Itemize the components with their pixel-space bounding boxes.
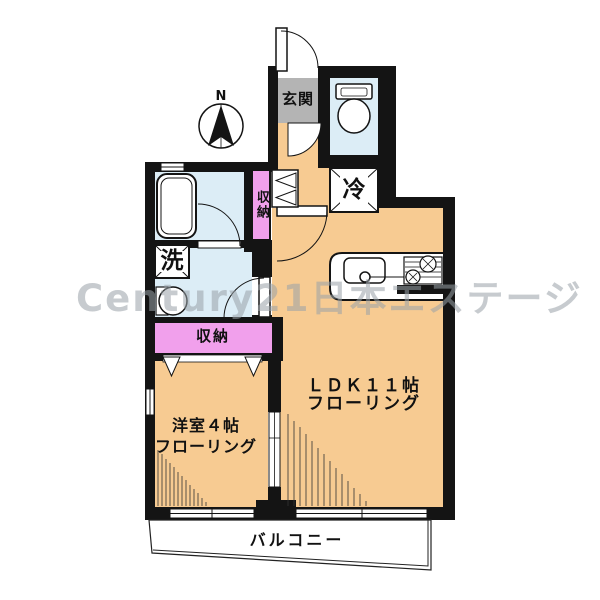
floorplan-canvas: N 玄関 収納 冷 洗 収納 ＬＤＫ１１帖 フローリング 洋室４帖 フローリング…	[0, 0, 600, 600]
western-room-label: 洋室４帖 フローリング	[155, 415, 257, 457]
north-compass	[199, 104, 243, 148]
wall-hall-left	[268, 66, 278, 172]
washer-label: 洗	[161, 249, 184, 273]
wall-under-upper-closet	[244, 240, 272, 252]
wall-closet-band-right	[272, 317, 283, 361]
upper-closet-bifold-door	[272, 170, 298, 207]
wall-room-partition-upper	[268, 361, 281, 412]
wall-top-section-right	[378, 66, 396, 208]
balcony-label: バルコニー	[250, 533, 345, 550]
wall-left	[145, 162, 155, 520]
watermark-text: Century21日本エステージ	[76, 268, 583, 322]
lower-closet-label: 収納	[196, 329, 230, 345]
room-partition-sliding-door	[269, 412, 280, 487]
wall-ldk-right	[443, 197, 455, 520]
compass-n-label: N	[216, 90, 227, 104]
genkan-label: 玄関	[282, 92, 314, 108]
bathroom-top-window	[161, 163, 184, 171]
ldk-label-line2: フローリング	[307, 395, 421, 413]
bathtub-icon	[157, 174, 196, 238]
left-wall-window	[146, 389, 154, 415]
ldk-label: ＬＤＫ１１帖 フローリング	[307, 377, 421, 413]
western-room-window	[170, 509, 254, 518]
upper-closet-label: 収納	[254, 190, 268, 220]
wall-room-partition-base	[256, 500, 296, 520]
wall-toilet-bottom	[318, 155, 396, 168]
wall-bath-right	[244, 162, 252, 252]
ldk-window	[296, 509, 427, 518]
western-room-label-line2: フローリング	[155, 436, 257, 457]
western-room-label-line1: 洋室４帖	[155, 415, 257, 436]
entrance-door	[276, 28, 318, 71]
toilet-icon	[336, 84, 372, 133]
fridge-label: 冷	[343, 178, 366, 202]
ldk-label-line1: ＬＤＫ１１帖	[307, 377, 421, 395]
